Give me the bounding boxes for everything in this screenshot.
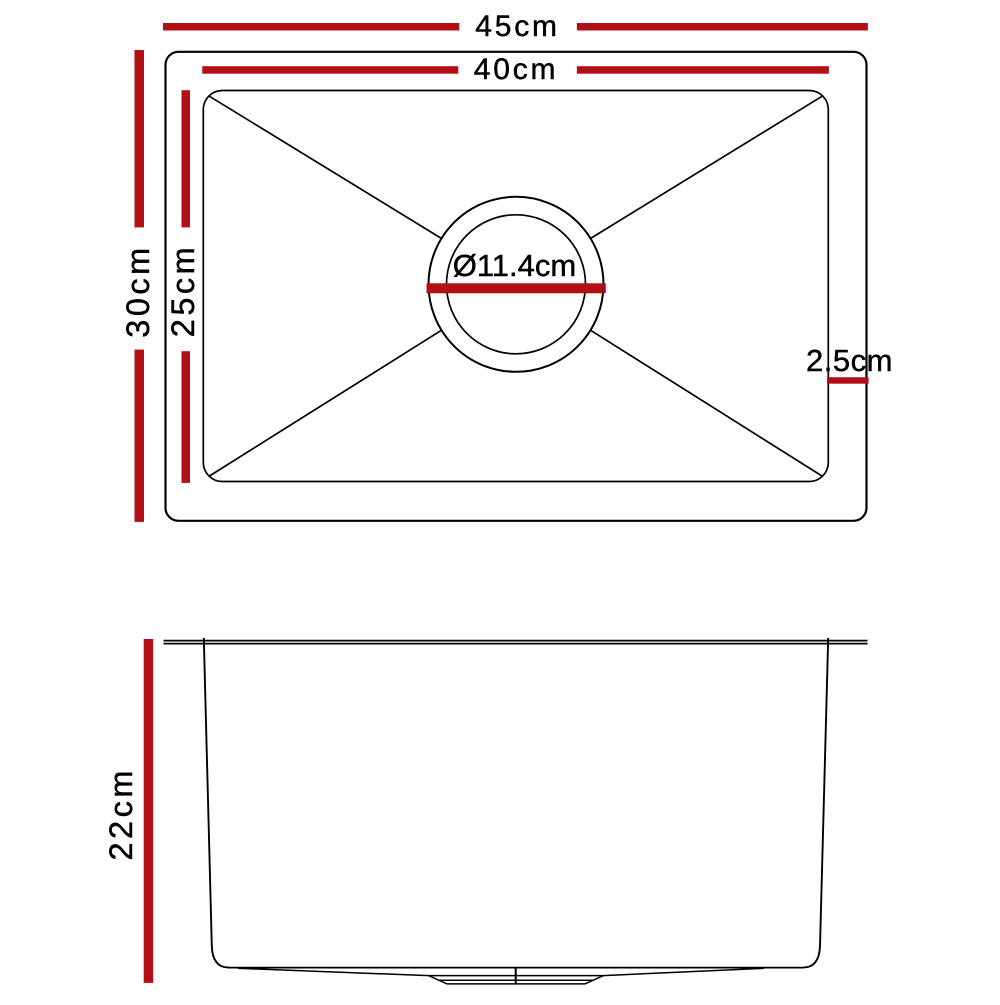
svg-text:22cm: 22cm <box>103 767 139 860</box>
svg-text:30cm: 30cm <box>120 244 156 337</box>
svg-text:40cm: 40cm <box>474 53 559 86</box>
svg-text:45cm: 45cm <box>475 10 560 43</box>
svg-text:25cm: 25cm <box>165 244 201 337</box>
svg-text:Ø11.4cm: Ø11.4cm <box>453 248 576 283</box>
svg-text:2.5cm: 2.5cm <box>806 343 893 378</box>
